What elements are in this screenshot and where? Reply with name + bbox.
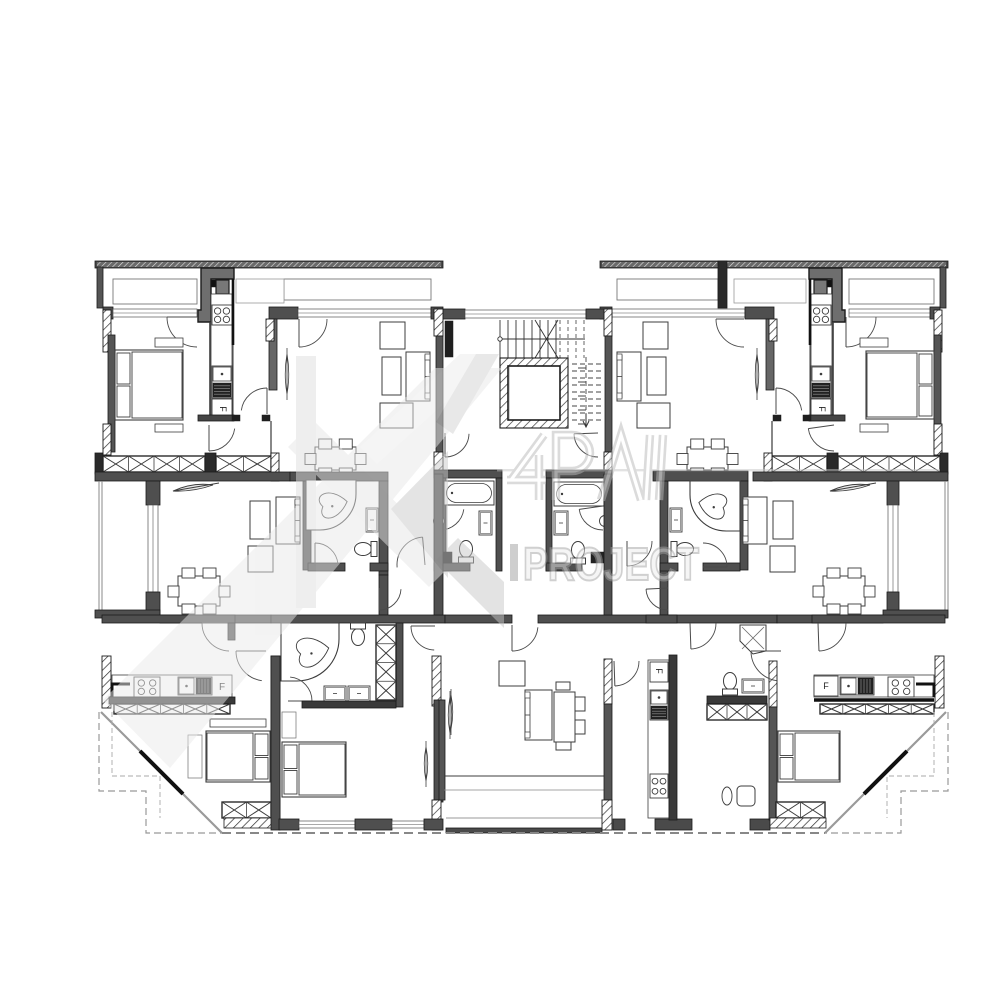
svg-text:F: F xyxy=(817,406,827,412)
svg-text:PROJECT: PROJECT xyxy=(523,538,699,590)
svg-text:F: F xyxy=(218,406,228,412)
svg-text:F: F xyxy=(654,668,664,674)
svg-text:F: F xyxy=(823,681,829,691)
